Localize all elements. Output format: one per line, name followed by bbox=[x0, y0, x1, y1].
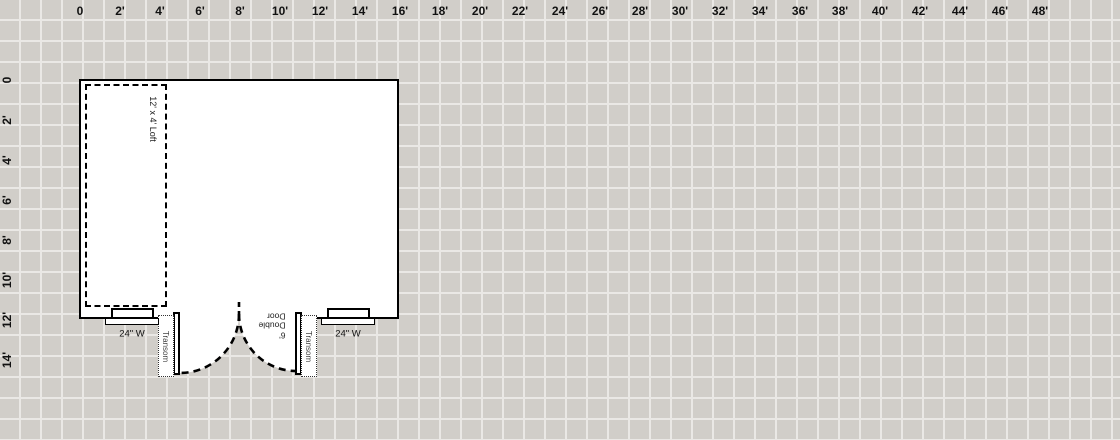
top-ruler-label: 30' bbox=[672, 4, 688, 18]
top-ruler-label: 10' bbox=[272, 4, 288, 18]
top-ruler-label: 46' bbox=[992, 4, 1008, 18]
top-ruler-label: 12' bbox=[312, 4, 328, 18]
double-door-label: 6' Double Door bbox=[259, 311, 286, 340]
top-ruler-label: 28' bbox=[632, 4, 648, 18]
left-ruler-label: 4' bbox=[0, 155, 14, 165]
window-left-label: 24" W bbox=[119, 329, 145, 340]
left-ruler-label: 0 bbox=[0, 77, 14, 84]
top-ruler-label: 14' bbox=[352, 4, 368, 18]
left-ruler-label: 12' bbox=[0, 312, 14, 328]
left-ruler-label: 14' bbox=[0, 352, 14, 368]
top-ruler-label: 18' bbox=[432, 4, 448, 18]
top-ruler-label: 6' bbox=[195, 4, 205, 18]
left-ruler-label: 6' bbox=[0, 195, 14, 205]
door-leaf-left[interactable] bbox=[173, 312, 180, 375]
top-ruler-label: 26' bbox=[592, 4, 608, 18]
top-ruler-label: 42' bbox=[912, 4, 928, 18]
top-ruler-label: 44' bbox=[952, 4, 968, 18]
window-right-sill bbox=[321, 318, 375, 325]
transom-right[interactable]: Transom bbox=[301, 315, 317, 377]
top-ruler-label: 8' bbox=[235, 4, 245, 18]
loft-label: 12' x 4' Loft bbox=[148, 96, 158, 141]
top-ruler-label: 40' bbox=[872, 4, 888, 18]
left-ruler-label: 2' bbox=[0, 115, 14, 125]
top-ruler-label: 36' bbox=[792, 4, 808, 18]
design-canvas[interactable]: 02'4'6'8'10'12'14'16'18'20'22'24'26'28'3… bbox=[0, 0, 1120, 440]
top-ruler-label: 22' bbox=[512, 4, 528, 18]
window-left-sill bbox=[105, 318, 159, 325]
top-ruler-label: 20' bbox=[472, 4, 488, 18]
top-ruler-label: 0 bbox=[77, 4, 84, 18]
top-ruler-label: 2' bbox=[115, 4, 125, 18]
top-ruler-label: 32' bbox=[712, 4, 728, 18]
top-ruler-label: 16' bbox=[392, 4, 408, 18]
window-right-label: 24" W bbox=[335, 329, 361, 340]
top-ruler-label: 38' bbox=[832, 4, 848, 18]
top-ruler-label: 48' bbox=[1032, 4, 1048, 18]
transom-left[interactable]: Transom bbox=[158, 315, 174, 377]
left-ruler-label: 8' bbox=[0, 235, 14, 245]
transom-left-label: Transom bbox=[162, 330, 171, 361]
top-ruler-label: 34' bbox=[752, 4, 768, 18]
top-ruler-label: 4' bbox=[155, 4, 165, 18]
transom-right-label: Transom bbox=[305, 330, 314, 361]
left-ruler-label: 10' bbox=[0, 272, 14, 288]
top-ruler-label: 24' bbox=[552, 4, 568, 18]
